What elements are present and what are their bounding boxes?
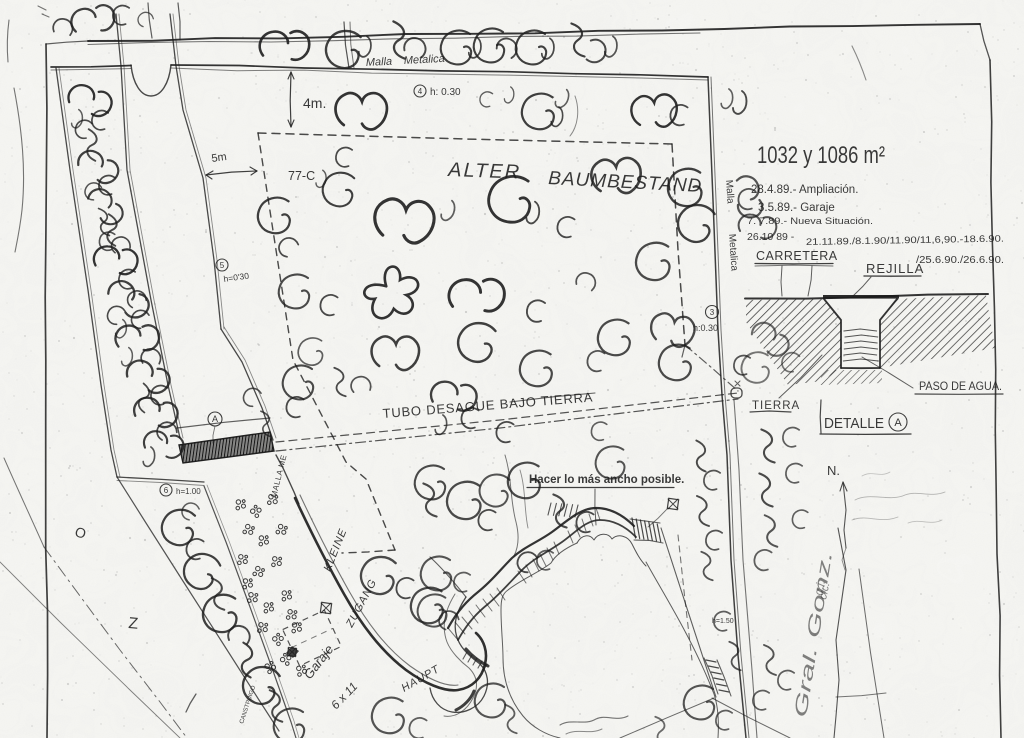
svg-text:REJILLA: REJILLA bbox=[866, 261, 924, 276]
svg-text:77-C: 77-C bbox=[288, 169, 315, 183]
svg-text:3.5.89.- Garaje: 3.5.89.- Garaje bbox=[758, 202, 835, 214]
svg-text:TIERRA: TIERRA bbox=[752, 400, 800, 412]
svg-text:N.: N. bbox=[827, 463, 840, 478]
svg-text:6: 6 bbox=[164, 486, 169, 495]
svg-text:A: A bbox=[894, 417, 902, 429]
svg-text:h: 0.30: h: 0.30 bbox=[430, 87, 461, 98]
svg-text:/25.6.90./26.6.90.: /25.6.90./26.6.90. bbox=[916, 255, 1004, 266]
svg-text:DETALLE: DETALLE bbox=[824, 416, 884, 432]
svg-text:Malla: Malla bbox=[366, 56, 393, 69]
svg-text:Z: Z bbox=[128, 615, 139, 633]
svg-text:5: 5 bbox=[220, 261, 225, 270]
svg-text:h:0.30: h:0.30 bbox=[693, 323, 718, 333]
svg-text:4: 4 bbox=[418, 87, 423, 96]
svg-text:28.4.89.- Ampliación.: 28.4.89.- Ampliación. bbox=[751, 184, 858, 196]
svg-text:3: 3 bbox=[710, 308, 715, 317]
svg-text:A: A bbox=[212, 414, 218, 424]
svg-text:Hacer lo más ancho posible.: Hacer lo más ancho posible. bbox=[529, 474, 684, 486]
svg-text:1032 y 1086 m²: 1032 y 1086 m² bbox=[757, 142, 885, 169]
svg-text:CARRETERA: CARRETERA bbox=[756, 249, 838, 263]
svg-text:PASO DE AGUA.: PASO DE AGUA. bbox=[919, 379, 1002, 393]
svg-text:h=1.00: h=1.00 bbox=[176, 487, 201, 496]
svg-text:5m: 5m bbox=[211, 151, 228, 165]
svg-text:4m.: 4m. bbox=[303, 95, 326, 111]
svg-text:Malla: Malla bbox=[723, 179, 736, 204]
svg-text:ALTER: ALTER bbox=[447, 159, 522, 184]
svg-text:h=1.50: h=1.50 bbox=[712, 618, 734, 625]
